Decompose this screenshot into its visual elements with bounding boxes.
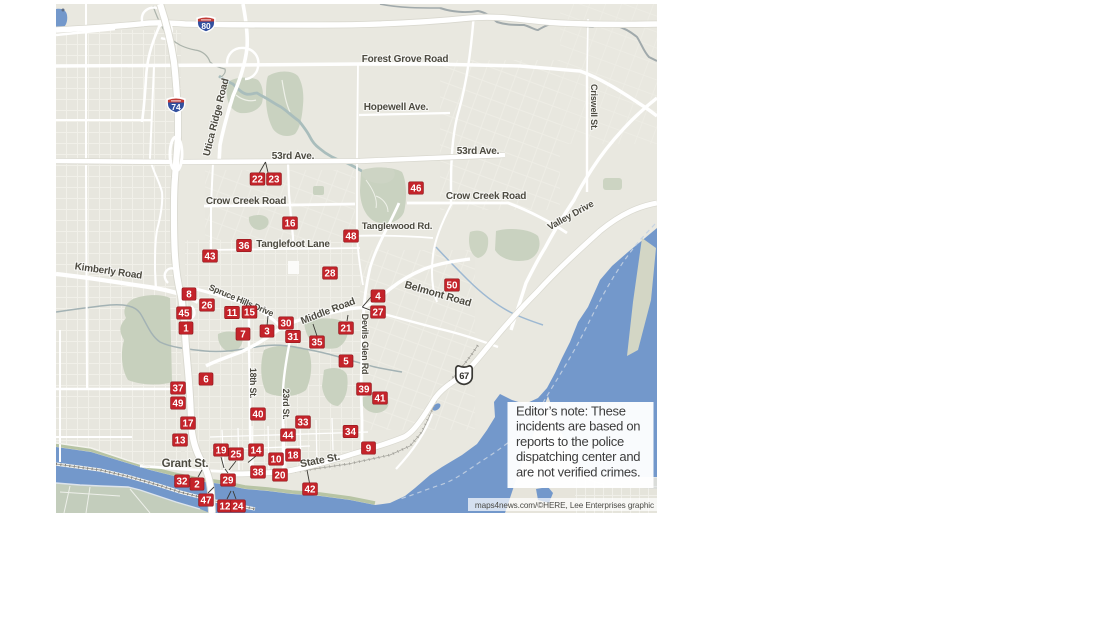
- svg-text:22: 22: [252, 175, 263, 186]
- svg-text:9: 9: [366, 444, 372, 455]
- svg-text:80: 80: [201, 21, 211, 31]
- svg-text:47: 47: [201, 496, 212, 507]
- svg-text:8: 8: [186, 290, 192, 301]
- svg-text:Tanglefoot Lane: Tanglefoot Lane: [256, 239, 330, 250]
- svg-text:18th St.: 18th St.: [248, 368, 258, 398]
- svg-text:40: 40: [253, 410, 264, 421]
- svg-text:17: 17: [183, 419, 194, 430]
- svg-text:4: 4: [375, 292, 381, 303]
- svg-text:10: 10: [271, 455, 282, 466]
- svg-text:49: 49: [173, 399, 184, 410]
- svg-text:18: 18: [288, 451, 299, 462]
- svg-text:Crow Creek Road: Crow Creek Road: [206, 196, 286, 207]
- svg-text:28: 28: [325, 269, 336, 280]
- svg-text:30: 30: [281, 319, 292, 330]
- svg-text:23: 23: [269, 175, 280, 186]
- svg-text:39: 39: [359, 385, 370, 396]
- svg-text:26: 26: [202, 301, 213, 312]
- svg-text:53rd Ave.: 53rd Ave.: [272, 151, 315, 162]
- svg-text:74: 74: [171, 102, 181, 112]
- svg-text:Tanglewood Rd.: Tanglewood Rd.: [362, 221, 433, 232]
- svg-text:1: 1: [183, 324, 189, 335]
- svg-text:3: 3: [264, 327, 270, 338]
- svg-text:37: 37: [173, 384, 184, 395]
- svg-text:44: 44: [283, 431, 294, 442]
- svg-text:32: 32: [177, 477, 188, 488]
- svg-text:45: 45: [179, 309, 190, 320]
- svg-text:29: 29: [223, 476, 234, 487]
- svg-text:35: 35: [312, 338, 323, 349]
- svg-text:27: 27: [373, 308, 384, 319]
- svg-text:14: 14: [251, 446, 262, 457]
- svg-text:Devils Glen Rd: Devils Glen Rd: [360, 314, 370, 375]
- svg-text:12: 12: [220, 502, 231, 513]
- svg-text:38: 38: [253, 468, 264, 479]
- svg-text:maps4news.com/©HERE, Lee Enter: maps4news.com/©HERE, Lee Enterprises gra…: [475, 501, 654, 510]
- svg-text:20: 20: [275, 471, 286, 482]
- svg-text:53rd Ave.: 53rd Ave.: [457, 146, 500, 157]
- svg-text:Editor’s note: These: Editor’s note: These: [516, 404, 626, 419]
- svg-text:46: 46: [411, 184, 422, 195]
- svg-text:dispatching center and: dispatching center and: [516, 449, 640, 464]
- svg-text:19: 19: [216, 446, 227, 457]
- svg-text:67: 67: [459, 370, 469, 381]
- svg-text:Forest Grove Road: Forest Grove Road: [362, 54, 449, 65]
- svg-text:are not verified crimes.: are not verified crimes.: [516, 464, 640, 479]
- svg-text:Grant St.: Grant St.: [162, 458, 209, 470]
- svg-text:36: 36: [239, 241, 250, 252]
- svg-text:Criswell St.: Criswell St.: [589, 84, 599, 130]
- svg-text:2: 2: [194, 480, 200, 491]
- svg-text:5: 5: [343, 357, 349, 368]
- svg-text:50: 50: [447, 281, 458, 292]
- svg-text:incidents are based on: incidents are based on: [516, 419, 640, 434]
- svg-text:34: 34: [345, 427, 356, 438]
- svg-text:23rd St.: 23rd St.: [281, 389, 291, 420]
- svg-text:Hopewell Ave.: Hopewell Ave.: [364, 102, 429, 113]
- svg-text:24: 24: [233, 502, 244, 513]
- svg-text:6: 6: [203, 375, 209, 386]
- svg-text:11: 11: [227, 308, 238, 319]
- svg-text:reports to the police: reports to the police: [516, 434, 624, 449]
- svg-text:25: 25: [231, 450, 242, 461]
- svg-text:13: 13: [175, 436, 186, 447]
- svg-text:15: 15: [244, 308, 255, 319]
- svg-text:7: 7: [240, 330, 246, 341]
- svg-text:33: 33: [298, 418, 309, 429]
- svg-text:48: 48: [346, 232, 357, 243]
- svg-text:Crow Creek Road: Crow Creek Road: [446, 191, 526, 202]
- svg-text:21: 21: [341, 324, 352, 335]
- svg-text:16: 16: [285, 219, 296, 230]
- svg-text:42: 42: [305, 485, 316, 496]
- svg-text:41: 41: [375, 394, 386, 405]
- svg-text:43: 43: [205, 252, 216, 263]
- svg-text:31: 31: [288, 332, 299, 343]
